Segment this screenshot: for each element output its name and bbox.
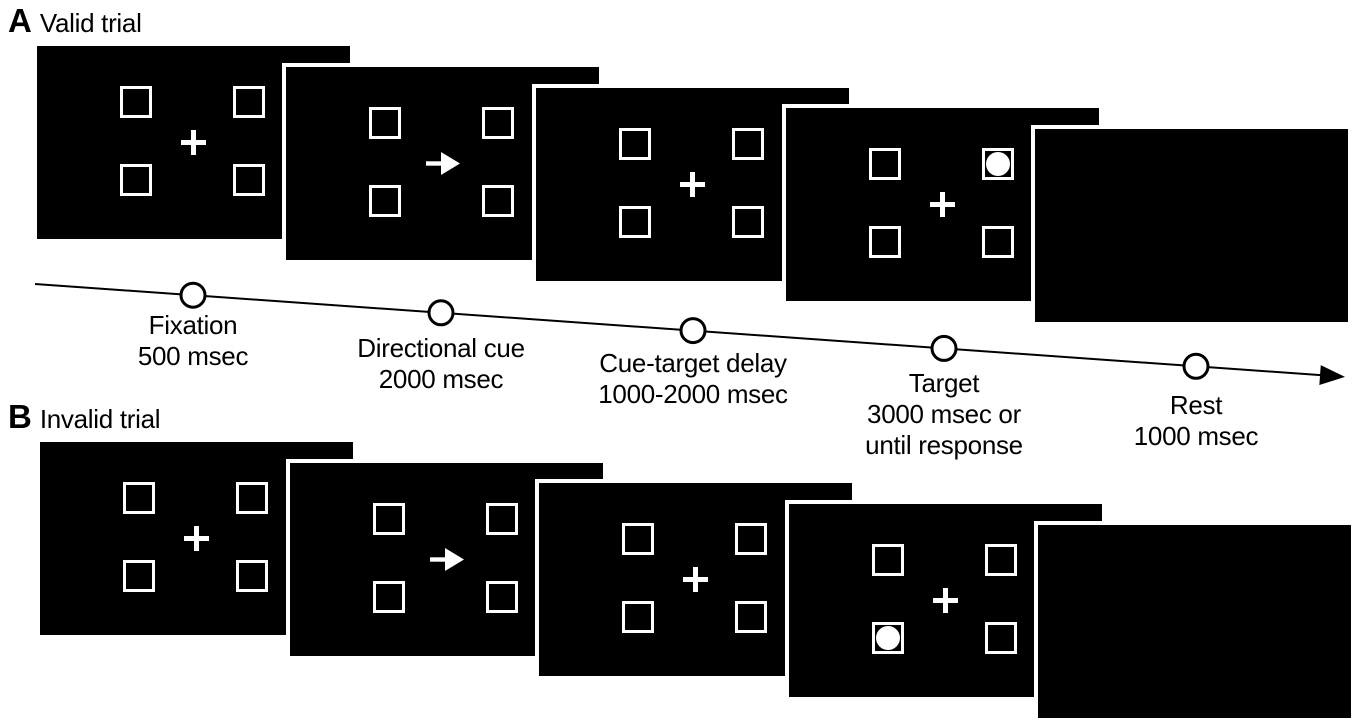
placeholder-box-bottom-left — [373, 581, 405, 613]
placeholder-box-top-left — [619, 128, 651, 160]
panel-b-title: Invalid trial — [40, 404, 160, 435]
stage-label-line: Directional cue — [357, 333, 524, 364]
stage-marker-circle — [681, 319, 705, 343]
stage-marker-circle — [1184, 354, 1208, 378]
stage-label-line: 1000 msec — [1134, 421, 1258, 452]
placeholder-box-top-right — [735, 523, 767, 555]
stage-marker-circle — [932, 336, 956, 360]
stage-label-line: Target — [865, 368, 1023, 399]
placeholder-box-top-right — [482, 107, 514, 139]
panel-a-letter: A — [8, 2, 31, 40]
stage-label-line: 1000-2000 msec — [598, 379, 787, 410]
placeholder-box-bottom-left — [869, 226, 901, 258]
stage-label-line: Fixation — [138, 310, 248, 341]
placeholder-box-top-right — [982, 148, 1014, 180]
placeholder-box-bottom-right — [482, 185, 514, 217]
placeholder-box-top-right — [236, 482, 268, 514]
placeholder-box-top-left — [123, 482, 155, 514]
stage-label-line: 2000 msec — [357, 364, 524, 395]
stage-marker-circle — [181, 283, 205, 307]
stage-label-line: 3000 msec or — [865, 399, 1023, 430]
placeholder-box-bottom-left — [619, 206, 651, 238]
right-arrow-cue-icon — [430, 548, 464, 571]
placeholder-box-bottom-left — [872, 622, 904, 654]
placeholder-box-bottom-right — [236, 560, 268, 592]
panel-b-screen-rest — [1038, 525, 1351, 718]
right-arrow-cue-icon — [426, 152, 460, 175]
placeholder-box-bottom-right — [735, 601, 767, 633]
stage-label: Directional cue2000 msec — [357, 333, 524, 395]
placeholder-box-top-right — [985, 544, 1017, 576]
placeholder-box-bottom-right — [985, 622, 1017, 654]
stage-marker-circle — [429, 301, 453, 325]
stage-label-line: Rest — [1134, 390, 1258, 421]
placeholder-box-top-left — [622, 523, 654, 555]
placeholder-box-top-left — [373, 503, 405, 535]
fixation-cross-icon — [933, 588, 958, 613]
panel-b-letter: B — [8, 398, 31, 436]
stage-label: Rest1000 msec — [1134, 390, 1258, 452]
placeholder-box-bottom-right — [233, 164, 265, 196]
placeholder-box-top-left — [872, 544, 904, 576]
stage-label-line: Cue-target delay — [598, 348, 787, 379]
placeholder-box-bottom-right — [732, 206, 764, 238]
panel-a-screen-rest — [1035, 129, 1348, 322]
fixation-cross-icon — [181, 130, 206, 155]
placeholder-box-top-right — [732, 128, 764, 160]
target-dot — [986, 152, 1010, 176]
fixation-cross-icon — [184, 526, 209, 551]
fixation-cross-icon — [680, 172, 705, 197]
panel-b-label: BInvalid trial — [8, 398, 160, 436]
fixation-cross-icon — [683, 567, 708, 592]
stage-label-line: 500 msec — [138, 341, 248, 372]
placeholder-box-bottom-left — [369, 185, 401, 217]
placeholder-box-bottom-right — [486, 581, 518, 613]
placeholder-box-top-left — [869, 148, 901, 180]
placeholder-box-top-right — [486, 503, 518, 535]
placeholder-box-bottom-right — [982, 226, 1014, 258]
stage-label: Fixation500 msec — [138, 310, 248, 372]
placeholder-box-top-left — [369, 107, 401, 139]
stage-label: Target3000 msec oruntil response — [865, 368, 1023, 461]
placeholder-box-bottom-left — [120, 164, 152, 196]
experiment-paradigm-figure: AValid trialBInvalid trialFixation500 ms… — [0, 0, 1355, 722]
panel-a-title: Valid trial — [40, 8, 142, 39]
placeholder-box-bottom-left — [622, 601, 654, 633]
placeholder-box-top-left — [120, 86, 152, 118]
target-dot — [876, 626, 900, 650]
panel-a-label: AValid trial — [8, 2, 142, 40]
placeholder-box-bottom-left — [123, 560, 155, 592]
fixation-cross-icon — [930, 192, 955, 217]
stage-label: Cue-target delay1000-2000 msec — [598, 348, 787, 410]
placeholder-box-top-right — [233, 86, 265, 118]
stage-label-line: until response — [865, 430, 1023, 461]
